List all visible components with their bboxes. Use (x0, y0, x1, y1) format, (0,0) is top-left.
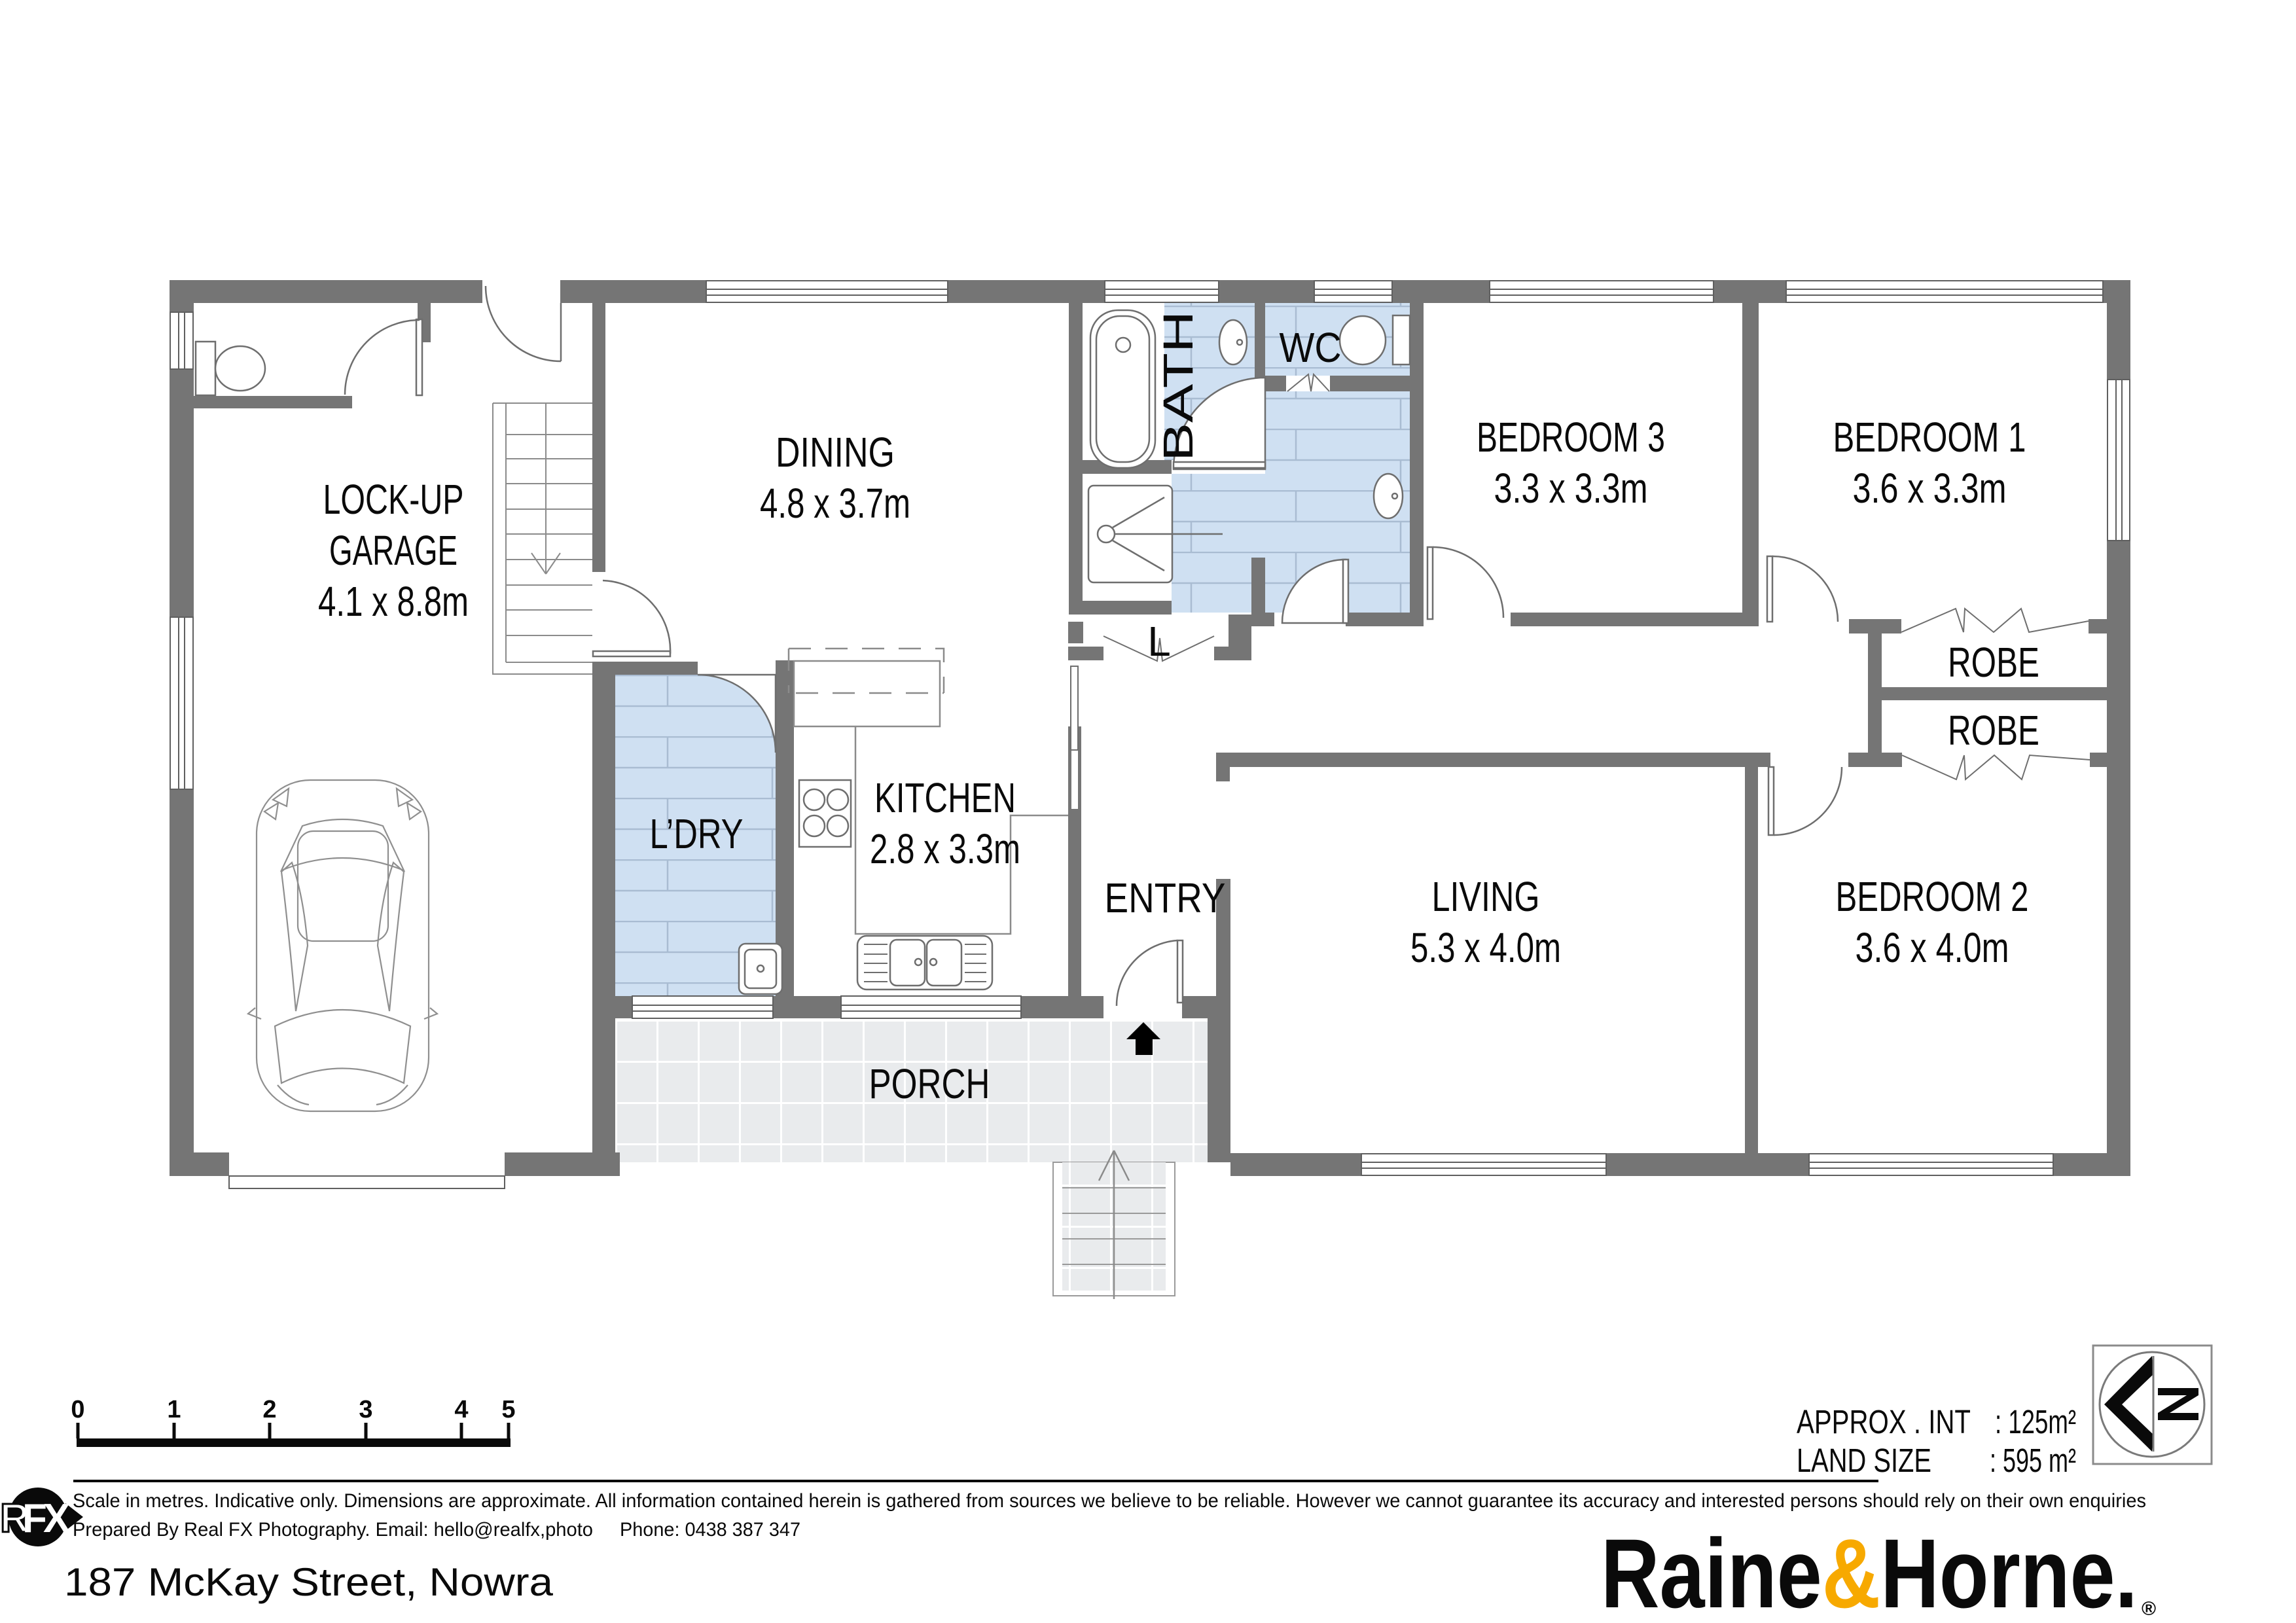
svg-text:LAND SIZE: LAND SIZE (1797, 1442, 1931, 1479)
svg-text:Raine&Horne.: Raine&Horne. (1601, 1518, 2138, 1623)
svg-text:Prepared By Real FX Photograph: Prepared By Real FX Photography. Email: … (73, 1519, 593, 1541)
svg-text:4.1 x 8.8m: 4.1 x 8.8m (318, 578, 469, 625)
svg-text:2: 2 (262, 1396, 276, 1423)
svg-text:KITCHEN: KITCHEN (874, 774, 1016, 821)
svg-text:: 125m²: : 125m² (1995, 1403, 2076, 1440)
svg-text:4.8 x 3.7m: 4.8 x 3.7m (760, 480, 910, 527)
svg-text:Phone: 0438 387 347: Phone: 0438 387 347 (620, 1519, 800, 1541)
svg-text:L’DRY: L’DRY (650, 810, 744, 857)
svg-text:ROBE: ROBE (1948, 707, 2039, 754)
svg-text:LOCK-UP: LOCK-UP (323, 476, 464, 523)
svg-text:X: X (43, 1496, 70, 1541)
svg-text:Scale in metres. Indicative on: Scale in metres. Indicative only. Dimens… (73, 1490, 2146, 1512)
svg-text:3.3 x 3.3m: 3.3 x 3.3m (1494, 465, 1648, 512)
svg-text:5: 5 (501, 1396, 515, 1423)
svg-text:GARAGE: GARAGE (329, 527, 457, 574)
svg-text:3.6 x 3.3m: 3.6 x 3.3m (1853, 465, 2007, 512)
svg-text:®: ® (2142, 1598, 2156, 1620)
svg-text:3: 3 (359, 1396, 372, 1423)
svg-text:5.3 x 4.0m: 5.3 x 4.0m (1410, 924, 1561, 971)
svg-text:WC: WC (1280, 324, 1342, 371)
svg-text:187 McKay Street, Nowra: 187 McKay Street, Nowra (64, 1560, 554, 1604)
svg-text:1: 1 (167, 1396, 181, 1423)
svg-text:4: 4 (454, 1396, 468, 1423)
svg-text:: 595 m²: : 595 m² (1990, 1442, 2076, 1479)
svg-text:BATH: BATH (1155, 311, 1202, 461)
svg-text:3.6 x 4.0m: 3.6 x 4.0m (1856, 924, 2009, 971)
svg-text:LIVING: LIVING (1432, 873, 1540, 920)
svg-text:DINING: DINING (776, 429, 895, 476)
svg-text:BEDROOM 1: BEDROOM 1 (1833, 414, 2026, 461)
svg-text:BEDROOM 2: BEDROOM 2 (1836, 873, 2029, 920)
svg-text:2.8 x 3.3m: 2.8 x 3.3m (870, 825, 1020, 872)
svg-text:ENTRY: ENTRY (1105, 874, 1226, 921)
svg-text:L: L (1147, 618, 1171, 665)
svg-text:ROBE: ROBE (1948, 639, 2039, 686)
svg-text:0: 0 (71, 1396, 84, 1423)
svg-text:BEDROOM 3: BEDROOM 3 (1477, 414, 1665, 461)
svg-text:PORCH: PORCH (869, 1060, 990, 1107)
svg-text:APPROX . INT: APPROX . INT (1797, 1403, 1971, 1440)
